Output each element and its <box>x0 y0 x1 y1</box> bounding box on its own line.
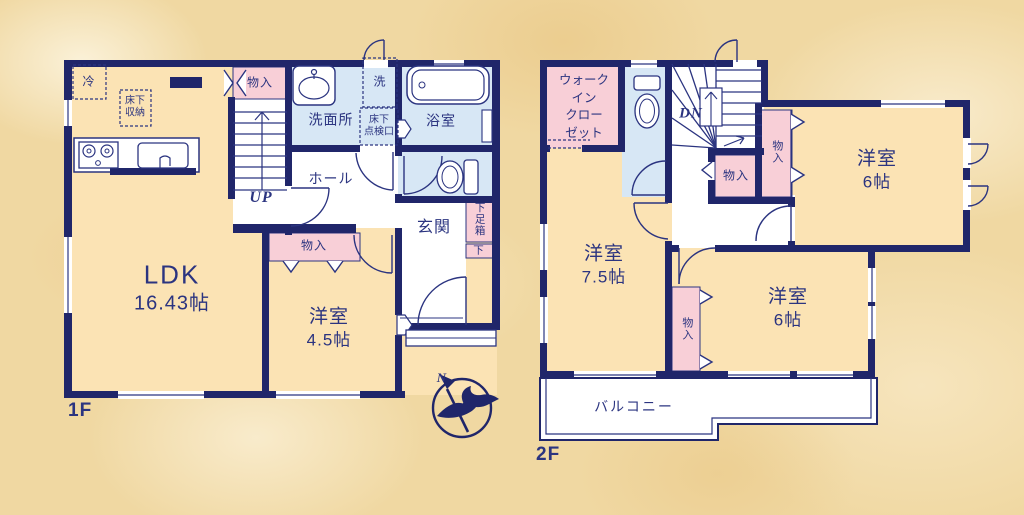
balcony-outline <box>540 378 877 440</box>
underfloor-access-label: 床下 点検口 <box>364 115 394 138</box>
room-label-youshitsu-75: 洋室 7.5帖 <box>582 243 627 288</box>
balcony-label: バルコニー <box>594 398 674 416</box>
kitchen-counter <box>74 138 199 175</box>
stairs-up-label: UP <box>249 188 272 208</box>
room-label-wic: ウォーク イン クロー ゼット <box>559 72 609 142</box>
underfloor-storage-label: 床下 収納 <box>125 96 145 119</box>
room-label-senmenjo: 洗面所 <box>309 111 354 129</box>
room-label-hall: ホール <box>309 170 354 188</box>
closet-label-top: 物入 <box>247 76 273 91</box>
closet-label-stair: 物入 <box>723 169 749 184</box>
bathtub-icon <box>407 66 489 104</box>
room-label-yokushitsu: 浴室 <box>426 112 456 130</box>
room-label-genkan: 玄関 <box>417 218 451 238</box>
closet-label-mid: 物入 <box>301 239 327 254</box>
shoe-cabinet-label: 下足箱 <box>472 202 485 237</box>
stairs-dn-label: DN <box>679 105 703 124</box>
floor-label-1f: 1F <box>68 399 92 423</box>
room-label-ldk: LDK 16.43帖 <box>134 258 210 316</box>
room-label-youshitsu-6-se: 洋室 6帖 <box>768 286 808 331</box>
floor-label-2f: 2F <box>536 443 560 467</box>
room-label-youshitsu-45: 洋室 4.5帖 <box>307 306 352 351</box>
washroom-sink-icon <box>293 66 335 105</box>
compass-north-label: N <box>437 370 447 386</box>
refrigerator-label: 冷 <box>82 75 95 90</box>
laundry-label: 洗 <box>373 75 386 90</box>
closet-label-mid-2f: 物入 <box>679 317 693 341</box>
bath-shelf <box>482 110 492 142</box>
toilet-icon-1f <box>437 160 478 194</box>
shoe-cabinet-lower-label: 下 <box>473 244 485 257</box>
closet-label-tall: 物入 <box>769 140 783 164</box>
room-label-youshitsu-6-ne: 洋室 6帖 <box>857 148 897 193</box>
floorplan-canvas: LDK 16.43帖 洋室 4.5帖 洗面所 浴室 ホール 玄関 物入 物入 冷… <box>0 0 1024 515</box>
toilet-icon-2f <box>634 76 660 128</box>
